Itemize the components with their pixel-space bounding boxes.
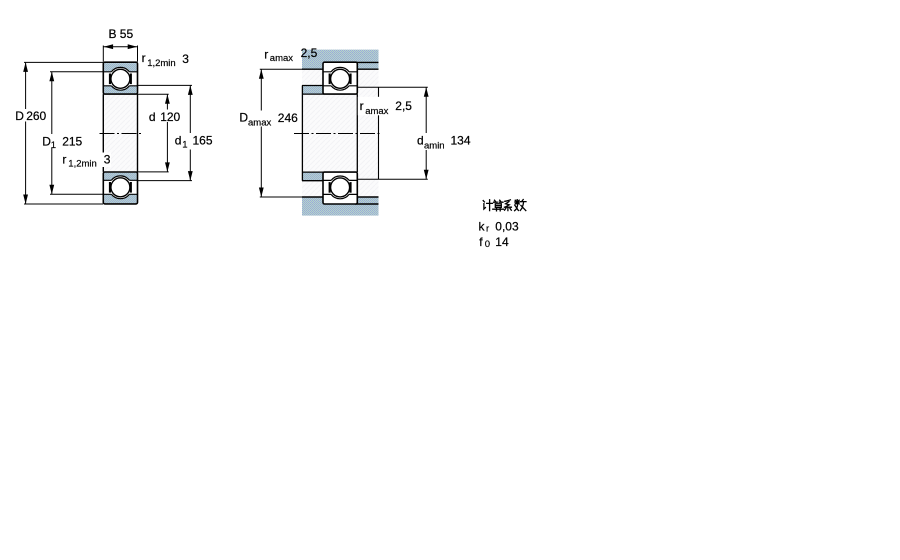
svg-text:1,2min: 1,2min	[147, 58, 176, 69]
svg-text:1: 1	[182, 139, 187, 150]
svg-text:246: 246	[278, 111, 298, 125]
svg-text:D: D	[15, 109, 24, 123]
svg-text:r: r	[62, 152, 66, 166]
svg-text:amax: amax	[270, 53, 293, 64]
svg-text:55: 55	[120, 27, 134, 41]
svg-text:2,5: 2,5	[301, 46, 318, 60]
svg-text:d: d	[417, 134, 424, 148]
svg-text:260: 260	[26, 109, 46, 123]
svg-text:3: 3	[182, 52, 189, 66]
svg-text:d: d	[175, 134, 182, 148]
svg-text:r: r	[486, 223, 489, 234]
svg-text:2,5: 2,5	[395, 99, 412, 113]
svg-text:120: 120	[160, 110, 180, 124]
svg-text:0: 0	[485, 239, 490, 250]
svg-text:1,2min: 1,2min	[68, 158, 97, 169]
svg-text:r: r	[360, 99, 364, 113]
svg-text:134: 134	[451, 133, 471, 147]
svg-text:amin: amin	[424, 140, 445, 151]
svg-text:k: k	[479, 220, 486, 234]
svg-text:r: r	[142, 51, 146, 65]
svg-text:r: r	[264, 48, 268, 62]
svg-text:amax: amax	[248, 117, 271, 128]
svg-text:d: d	[149, 110, 156, 124]
svg-text:165: 165	[193, 134, 213, 148]
svg-text:0,03: 0,03	[495, 220, 519, 234]
svg-text:14: 14	[495, 235, 509, 249]
svg-text:215: 215	[62, 135, 82, 149]
svg-text:1: 1	[51, 140, 56, 151]
svg-text:amax: amax	[365, 106, 388, 117]
svg-text:B: B	[109, 27, 117, 41]
svg-text:3: 3	[104, 153, 111, 167]
